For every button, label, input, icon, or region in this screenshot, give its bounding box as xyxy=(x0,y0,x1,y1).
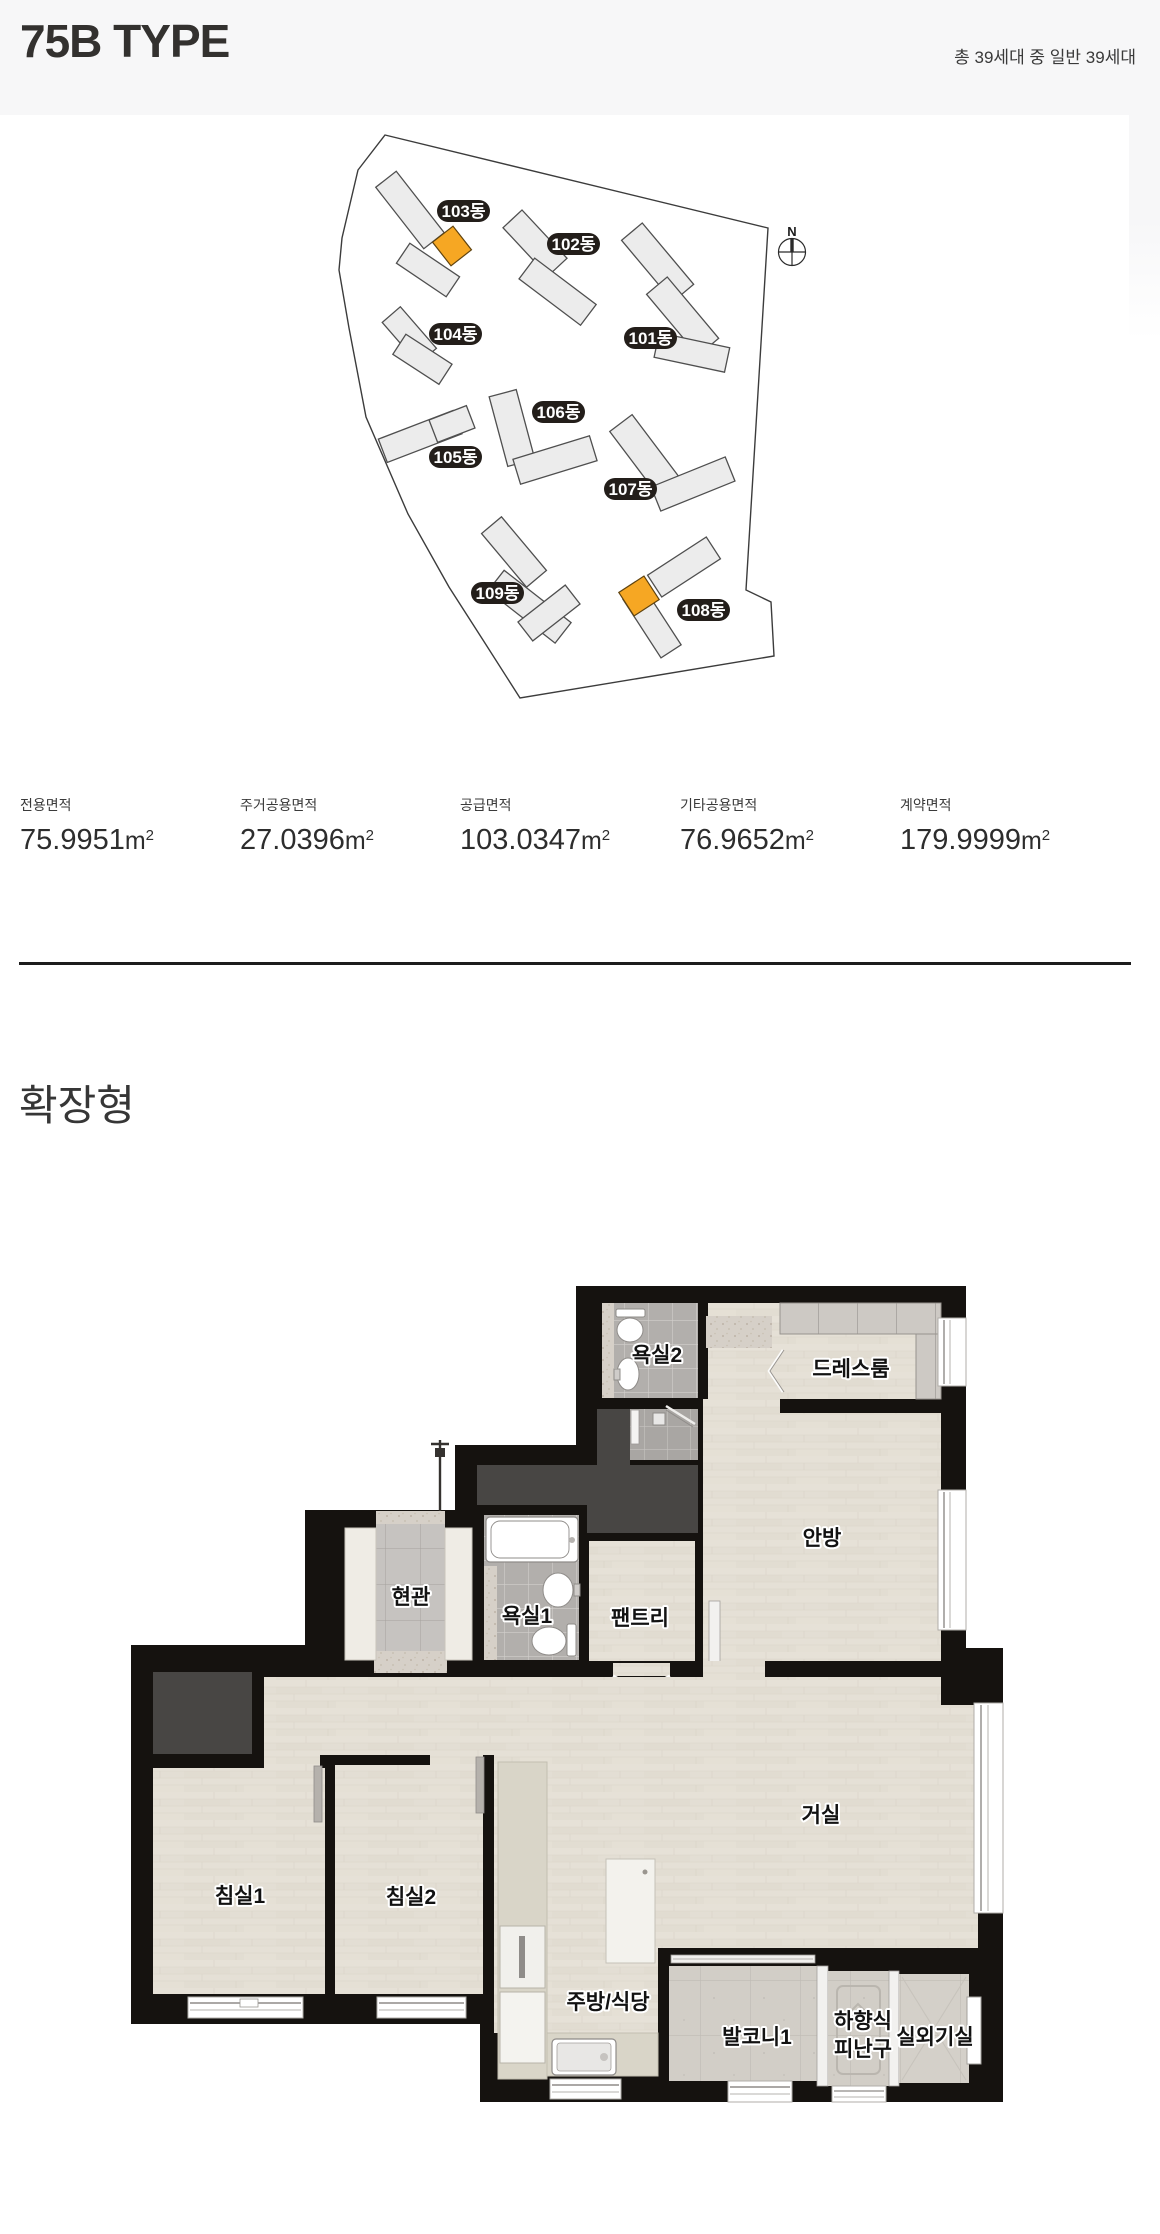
svg-text:드레스룸: 드레스룸 xyxy=(812,1358,889,1381)
svg-text:106동: 106동 xyxy=(536,403,580,422)
svg-text:침실1: 침실1 xyxy=(215,1885,266,1908)
svg-text:105동: 105동 xyxy=(433,448,477,467)
svg-text:팬트리: 팬트리 xyxy=(611,1607,669,1630)
svg-text:하향식: 하향식 xyxy=(834,2009,892,2033)
svg-text:침실2: 침실2 xyxy=(386,1886,436,1909)
svg-text:안방: 안방 xyxy=(803,1527,842,1550)
svg-text:욕실2: 욕실2 xyxy=(632,1344,682,1367)
svg-text:욕실1: 욕실1 xyxy=(502,1605,553,1628)
svg-text:107동: 107동 xyxy=(608,480,652,499)
svg-text:103동: 103동 xyxy=(441,202,485,221)
svg-text:102동: 102동 xyxy=(551,235,595,254)
svg-text:주방/식당: 주방/식당 xyxy=(566,1991,649,2014)
svg-text:104동: 104동 xyxy=(433,325,477,344)
svg-text:거실: 거실 xyxy=(802,1804,841,1827)
svg-text:N: N xyxy=(787,224,796,239)
svg-text:피난구: 피난구 xyxy=(834,2038,892,2061)
svg-text:109동: 109동 xyxy=(475,584,519,603)
svg-text:발코니1: 발코니1 xyxy=(722,2026,792,2049)
svg-text:실외기실: 실외기실 xyxy=(896,2026,973,2049)
svg-text:현관: 현관 xyxy=(392,1586,431,1609)
svg-text:108동: 108동 xyxy=(681,601,725,620)
svg-text:101동: 101동 xyxy=(628,329,672,348)
